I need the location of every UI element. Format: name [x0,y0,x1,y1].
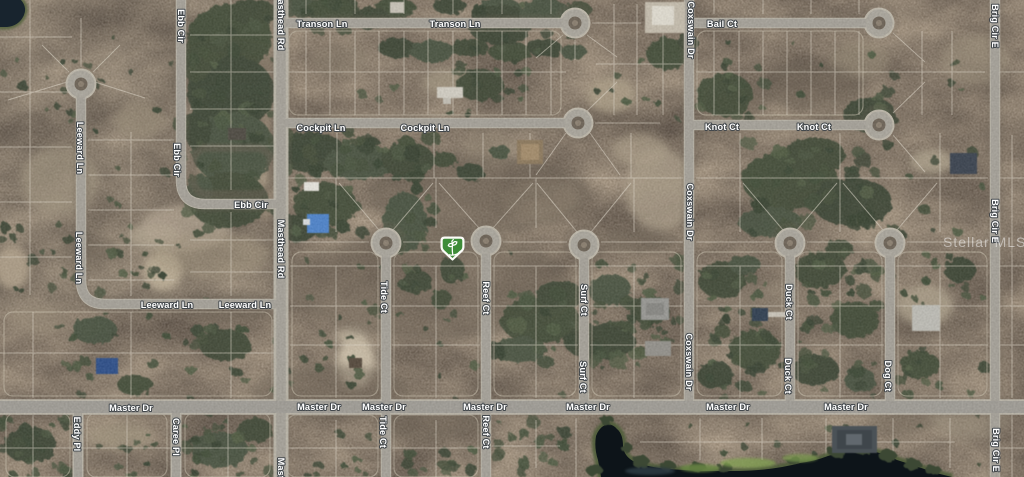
svg-text:Knot Ct: Knot Ct [797,122,831,132]
svg-text:Caree Pl: Caree Pl [171,418,181,456]
svg-text:Coxswain Dr: Coxswain Dr [686,1,696,59]
svg-text:Master Dr: Master Dr [706,402,750,412]
svg-text:Transon Ln: Transon Ln [429,19,480,29]
svg-text:Tide Ct: Tide Ct [378,416,388,448]
svg-text:Masthead Rd: Masthead Rd [276,458,286,477]
svg-text:Surf Ct: Surf Ct [579,284,589,316]
svg-text:Reef Ct: Reef Ct [481,415,491,448]
svg-text:Brig Cir E: Brig Cir E [990,4,1000,48]
svg-text:Leeward Ln: Leeward Ln [141,300,194,310]
svg-text:Knot Ct: Knot Ct [705,122,739,132]
svg-text:Masthead Rd: Masthead Rd [276,0,286,50]
svg-text:Cockpit Ln: Cockpit Ln [401,123,450,133]
svg-text:Master Dr: Master Dr [824,402,868,412]
svg-text:Master Dr: Master Dr [463,402,507,412]
svg-text:Master Dr: Master Dr [109,403,153,413]
svg-text:Master Dr: Master Dr [362,402,406,412]
svg-text:Coxswain Dr: Coxswain Dr [685,183,695,241]
svg-text:Leeward Ln: Leeward Ln [75,122,85,175]
svg-text:Reef Ct: Reef Ct [481,281,491,314]
svg-text:Stellar MLS: Stellar MLS [943,234,1024,250]
svg-text:Bail Ct: Bail Ct [707,19,737,29]
svg-text:Ebb Cir: Ebb Cir [234,200,268,210]
svg-text:Ebb Cir: Ebb Cir [176,9,186,43]
svg-text:Eddy Pl: Eddy Pl [72,417,82,452]
svg-text:Brig Cir E: Brig Cir E [991,428,1001,472]
svg-text:Leeward Ln: Leeward Ln [219,300,272,310]
svg-text:Master Dr: Master Dr [566,402,610,412]
svg-text:Master Dr: Master Dr [297,402,341,412]
svg-text:Dog Ct: Dog Ct [883,360,893,391]
svg-text:Cockpit Ln: Cockpit Ln [297,123,346,133]
svg-text:Transon Ln: Transon Ln [296,19,347,29]
svg-text:Ebb Cir: Ebb Cir [172,143,182,177]
svg-text:Surf Ct: Surf Ct [578,361,588,393]
svg-text:Duck Ct: Duck Ct [784,284,794,320]
svg-text:Coxswain Dr: Coxswain Dr [684,333,694,391]
svg-text:Tide Ct: Tide Ct [379,281,389,313]
svg-text:Masthead Rd: Masthead Rd [276,220,286,279]
svg-text:Leeward Ln: Leeward Ln [74,232,84,285]
svg-text:Duck Ct: Duck Ct [783,358,793,394]
